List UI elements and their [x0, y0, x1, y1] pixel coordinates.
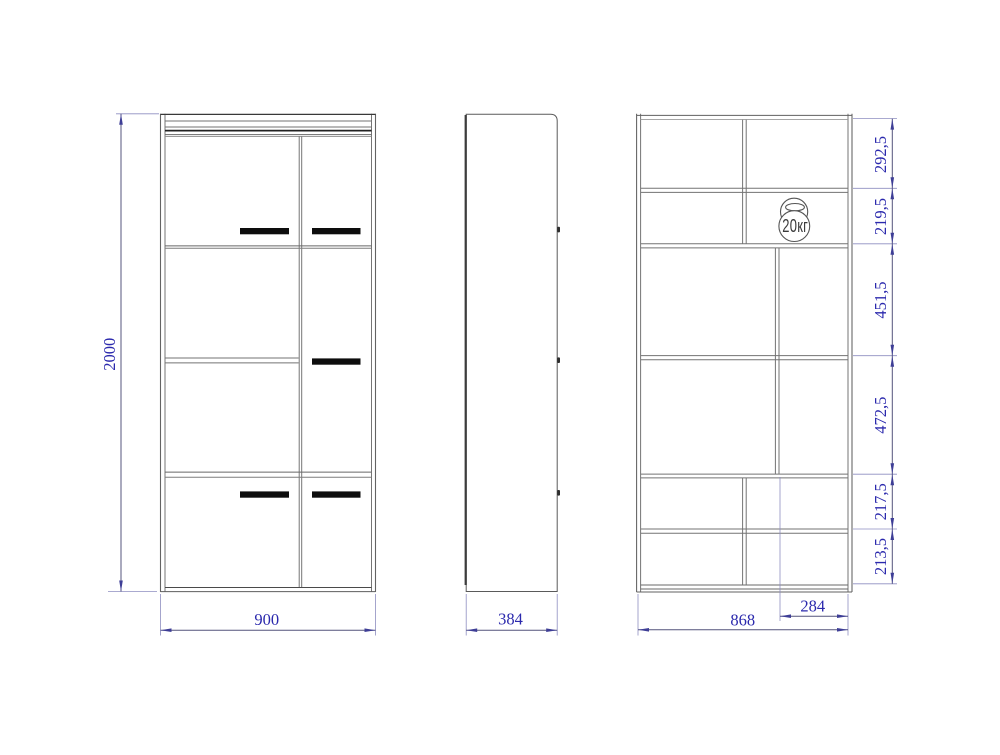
svg-text:217,5: 217,5	[871, 483, 890, 520]
svg-text:451,5: 451,5	[871, 281, 890, 318]
svg-text:292,5: 292,5	[871, 136, 890, 173]
svg-text:384: 384	[498, 609, 523, 628]
svg-text:900: 900	[254, 610, 279, 629]
svg-text:284: 284	[800, 597, 825, 616]
svg-text:219,5: 219,5	[871, 198, 890, 235]
svg-text:868: 868	[730, 610, 755, 629]
svg-text:472,5: 472,5	[871, 397, 890, 434]
svg-text:213,5: 213,5	[871, 538, 890, 575]
svg-text:20кг: 20кг	[782, 217, 808, 237]
svg-text:2000: 2000	[100, 338, 119, 371]
